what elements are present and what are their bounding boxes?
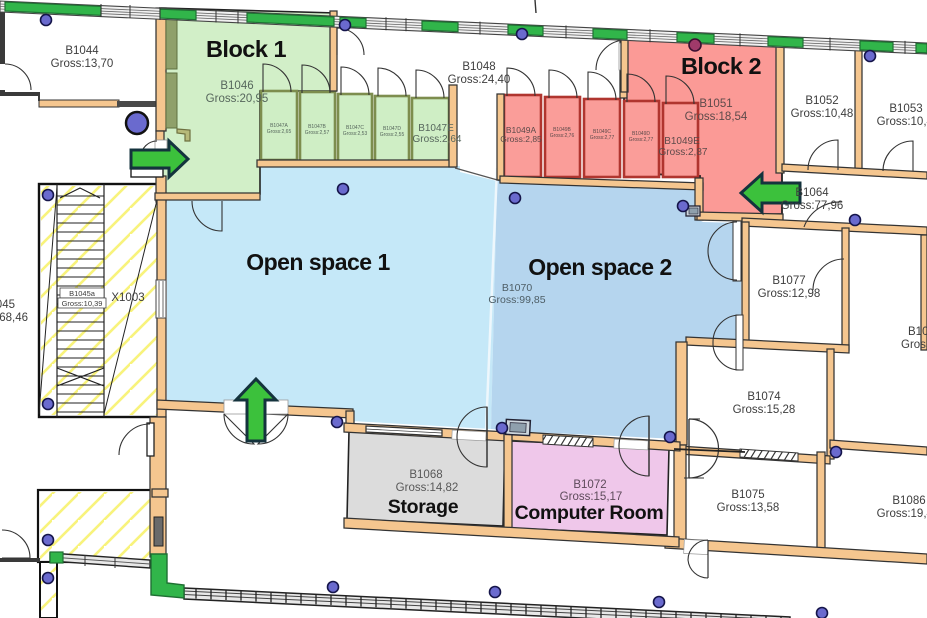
svg-text:Gross:15,17: Gross:15,17 — [560, 491, 623, 503]
svg-text:Gross:2,85: Gross:2,85 — [500, 134, 542, 144]
svg-text:Open space 2: Open space 2 — [528, 254, 672, 280]
svg-text:B1064: B1064 — [795, 187, 829, 199]
svg-text:Storage: Storage — [388, 496, 459, 518]
svg-text:B1048: B1048 — [462, 61, 495, 73]
svg-text:Gross:13,70: Gross:13,70 — [51, 58, 114, 70]
svg-text:Gross:10,48: Gross:10,48 — [877, 116, 927, 128]
svg-text:Block 1: Block 1 — [206, 36, 287, 62]
svg-text:B1046: B1046 — [220, 80, 253, 92]
svg-text:Gross:77,96: Gross:77,96 — [781, 200, 844, 212]
svg-text:Gross:15,28: Gross:15,28 — [733, 404, 796, 416]
svg-text:Gross:2,87: Gross:2,87 — [659, 147, 708, 158]
svg-text:Gross:14,82: Gross:14,82 — [396, 482, 459, 494]
svg-text:Gross:2,77: Gross:2,77 — [590, 135, 615, 141]
svg-text:Gross:19,40: Gross:19,40 — [877, 508, 927, 520]
svg-text:Gross:2,55: Gross:2,55 — [380, 132, 405, 138]
svg-text:B1045: B1045 — [0, 299, 15, 311]
svg-text:B1077: B1077 — [772, 275, 805, 287]
svg-text:B1047E: B1047E — [418, 123, 454, 134]
svg-text:B1045a: B1045a — [69, 289, 96, 298]
svg-text:B1070: B1070 — [502, 282, 533, 294]
svg-text:Gross:20,95: Gross:20,95 — [206, 93, 269, 105]
svg-text:Gross:10,39: Gross:10,39 — [62, 299, 103, 308]
svg-text:B1053: B1053 — [889, 103, 922, 115]
svg-text:B1086: B1086 — [892, 495, 925, 507]
svg-text:Gross:2,64: Gross:2,64 — [413, 134, 462, 145]
svg-text:B1075: B1075 — [731, 489, 764, 501]
svg-text:Gross:2,53: Gross:2,53 — [343, 131, 368, 137]
svg-text:Gross:12,98: Gross:12,98 — [758, 288, 821, 300]
svg-text:Computer Room: Computer Room — [515, 502, 664, 524]
svg-text:Block 2: Block 2 — [681, 53, 762, 79]
svg-text:B1068: B1068 — [409, 469, 442, 481]
svg-text:Gross:18,54: Gross:18,54 — [685, 111, 748, 123]
svg-text:Gross:68,46: Gross:68,46 — [0, 312, 28, 324]
svg-text:Gross:99,85: Gross:99,85 — [488, 294, 545, 306]
svg-text:Gross:2,57: Gross:2,57 — [305, 130, 330, 136]
svg-text:Gross:10,48: Gross:10,48 — [791, 108, 854, 120]
svg-text:B1074: B1074 — [747, 391, 781, 403]
svg-text:Gross:13,58: Gross:13,58 — [717, 502, 780, 514]
svg-text:Gross:2,76: Gross:2,76 — [550, 133, 575, 139]
svg-text:B1052: B1052 — [805, 95, 838, 107]
svg-text:B1080: B1080 — [908, 326, 927, 338]
svg-text:B1051: B1051 — [699, 98, 732, 110]
svg-text:B1049E: B1049E — [664, 136, 700, 147]
svg-text:B1072: B1072 — [573, 479, 606, 491]
svg-text:Gross:2,65: Gross:2,65 — [267, 129, 292, 135]
svg-text:X1003: X1003 — [111, 292, 144, 304]
svg-text:Gross:: Gross: — [901, 339, 927, 351]
svg-text:Open space 1: Open space 1 — [246, 249, 390, 275]
svg-text:Gross:2,77: Gross:2,77 — [629, 137, 654, 143]
svg-text:B1044: B1044 — [65, 45, 99, 57]
svg-text:Gross:24,40: Gross:24,40 — [448, 74, 511, 86]
